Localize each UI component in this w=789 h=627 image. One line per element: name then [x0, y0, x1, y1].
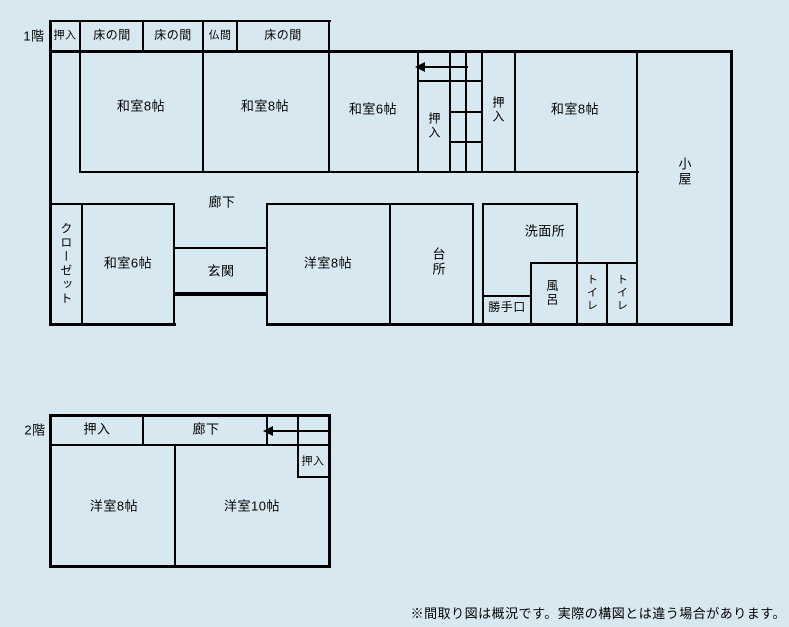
room-label-daidokoro: 台所	[430, 247, 445, 277]
wall	[530, 262, 532, 325]
room-label-rouka-1f: 廊下	[208, 196, 235, 211]
room-label-koya: 小屋	[676, 157, 691, 187]
wall	[266, 323, 733, 326]
room-label-youshitsu10: 洋室10帖	[224, 500, 280, 515]
room-label-washitsu8-1: 和室8帖	[117, 100, 165, 115]
wall	[730, 50, 733, 326]
wall	[173, 247, 268, 249]
room-label-rouka-2f: 廊下	[192, 423, 219, 438]
room-label-washitsu8-3: 和室8帖	[551, 103, 599, 118]
room-label-butsuma: 仏間	[209, 30, 232, 43]
room-label-tokonoma-3: 床の間	[264, 29, 302, 43]
wall	[472, 203, 474, 325]
wall	[79, 20, 81, 173]
floor2-label: 2階	[24, 424, 45, 439]
room-label-toilet-2: トイレ	[615, 274, 628, 313]
wall	[142, 20, 144, 52]
wall	[266, 203, 268, 325]
wall	[49, 414, 331, 417]
wall	[49, 323, 176, 326]
wall	[328, 20, 330, 173]
wall	[49, 414, 52, 568]
wall	[49, 20, 331, 22]
wall	[236, 20, 238, 52]
wall	[482, 295, 532, 297]
wall	[328, 414, 331, 568]
wall	[514, 50, 516, 173]
room-label-oshiire-2f-top: 押入	[83, 423, 110, 438]
room-label-tokonoma-2: 床の間	[154, 29, 192, 43]
room-label-oshiire-2f-right: 押入	[302, 456, 325, 469]
wall	[49, 20, 52, 326]
wall	[389, 203, 391, 325]
room-label-genkan: 玄関	[207, 265, 234, 280]
wall	[482, 203, 484, 325]
wall	[297, 476, 331, 478]
room-label-oshiire-top: 押入	[54, 30, 77, 43]
room-label-tokonoma-1: 床の間	[93, 29, 131, 43]
stair-direction-arrow-head	[415, 62, 425, 72]
wall	[482, 203, 578, 205]
disclaimer-note: ※間取り図は概況です。実際の構図とは違う場合があります。	[411, 603, 786, 622]
wall	[49, 444, 331, 446]
wall	[449, 50, 451, 173]
room-label-washitsu6-north: 和室6帖	[349, 103, 397, 118]
wall	[481, 50, 483, 173]
room-label-oshiire-north: 押入	[490, 96, 504, 124]
room-label-senmenjo: 洗面所	[525, 225, 566, 240]
room-label-youshitsu8-1f: 洋室8帖	[304, 257, 352, 272]
wall	[297, 414, 299, 478]
room-label-furo: 風呂	[544, 279, 558, 307]
wall	[49, 50, 733, 53]
wall	[49, 203, 175, 205]
stair-direction-arrow	[424, 66, 468, 68]
wall	[49, 565, 331, 568]
room-label-stair-oshiire: 押入	[426, 112, 440, 140]
room-label-washitsu8-2: 和室8帖	[241, 100, 289, 115]
room-label-katteguchi: 勝手口	[488, 301, 526, 315]
wall	[173, 292, 268, 296]
wall	[606, 262, 608, 325]
floor1-label: 1階	[23, 30, 44, 45]
room-label-closet: クローゼット	[58, 222, 72, 306]
wall	[81, 203, 83, 325]
room-label-toilet-1: トイレ	[585, 274, 598, 313]
wall	[142, 414, 144, 446]
wall	[173, 203, 175, 325]
wall	[79, 171, 639, 173]
wall	[530, 262, 638, 264]
floor-plan-image: 1階 押入 床の間 床の間 仏間 床の間 和室8帖 和室8帖 和室6帖 押入 押…	[0, 0, 789, 627]
stair-direction-arrow	[272, 430, 329, 432]
wall	[576, 203, 578, 325]
stair-direction-arrow-head	[263, 426, 273, 436]
wall	[636, 50, 638, 326]
wall	[465, 50, 467, 173]
wall	[202, 20, 204, 173]
wall	[266, 203, 474, 205]
room-label-washitsu6-south: 和室6帖	[104, 257, 152, 272]
wall	[174, 444, 176, 567]
room-label-youshitsu8-2f: 洋室8帖	[90, 500, 138, 515]
